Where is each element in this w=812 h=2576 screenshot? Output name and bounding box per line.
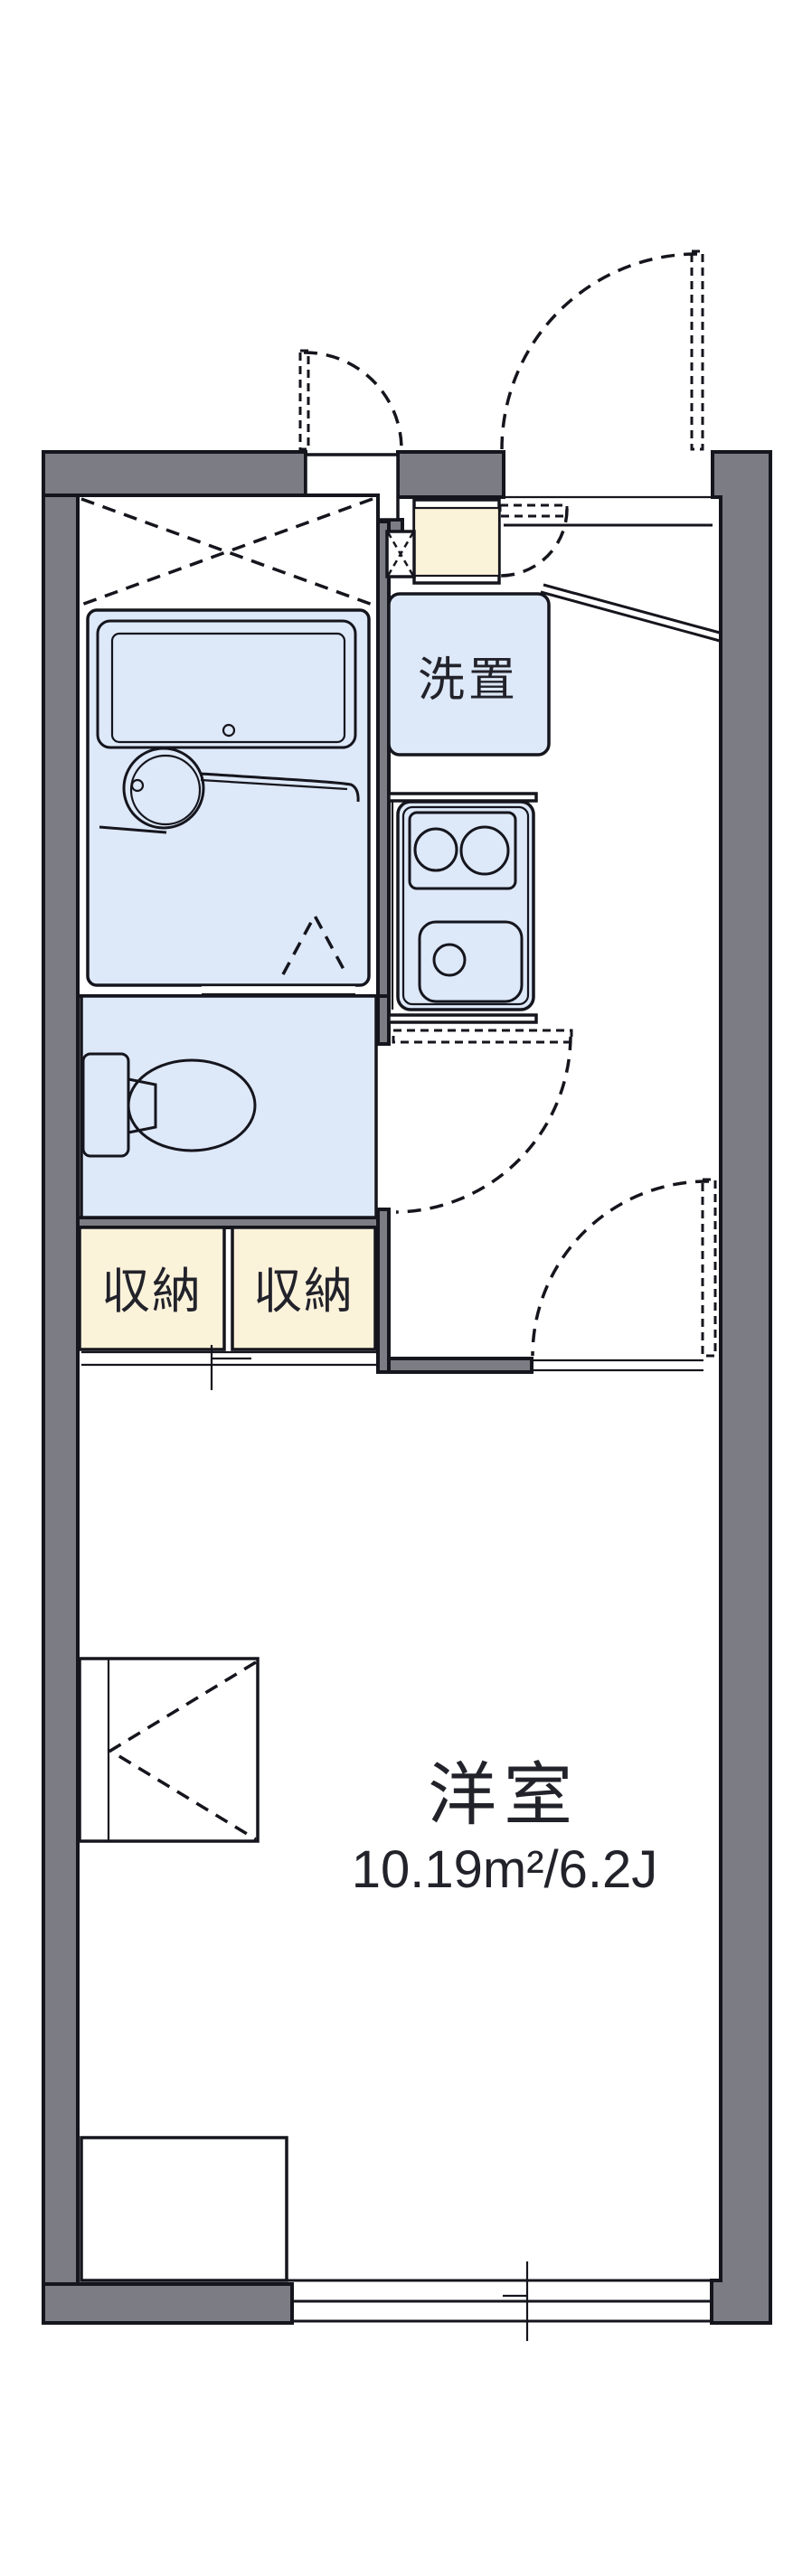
shoe-counter-edge-1: [543, 585, 720, 633]
room-door: [532, 1180, 715, 1370]
wall-bottom: [43, 2284, 292, 2323]
front-door-leaf: [692, 251, 703, 449]
wall-top-center: [398, 452, 504, 497]
kitchen-top-bar: [389, 794, 536, 801]
wall-toilet-right-lower: [378, 1209, 389, 1372]
shoe-counter-edge-2: [541, 592, 720, 641]
kitchen-bottom-bar: [389, 1015, 536, 1022]
alcove-door-swing-arc: [304, 353, 401, 449]
wall-right: [712, 452, 770, 2323]
low-cabinet: [81, 2138, 287, 2280]
room-door-swing-arc: [533, 1181, 709, 1356]
casement-window-box: [80, 1659, 258, 1841]
storage-closets: 収納 収納: [80, 1227, 378, 1390]
main-room: 洋室 10.19m²/6.2J: [80, 1659, 712, 2341]
laundry-label: 洗置: [418, 654, 519, 707]
toilet-room: [81, 996, 571, 1217]
utility-boxes: [387, 500, 567, 583]
unit-bath-panel: [88, 610, 369, 985]
wall-hall-room-divider: [389, 1359, 532, 1372]
front-door-swing-arc: [502, 254, 697, 449]
wall-left: [43, 452, 78, 2323]
floor-plan: 洗置 収納 収納 洋室 10.19m²/6.2J: [0, 0, 812, 2576]
water-heater-box: [414, 508, 499, 576]
storage-left-label: 収納: [101, 1264, 203, 1319]
heater-door-leaf: [500, 505, 567, 516]
storage-right-label: 収納: [253, 1264, 354, 1319]
kitchen: [389, 794, 536, 1022]
wall-toilet-right-upper: [378, 996, 389, 1044]
wall-top-left: [43, 452, 306, 495]
laundry-space: 洗置: [389, 594, 549, 755]
alcove-door-leaf: [300, 351, 308, 449]
main-room-label: 洋室: [428, 1757, 580, 1834]
room-door-leaf: [703, 1180, 715, 1356]
floor-plan-page: 洗置 収納 収納 洋室 10.19m²/6.2J: [0, 0, 812, 2576]
main-room-area: 10.19m²/6.2J: [352, 1840, 658, 1899]
toilet-room-floor: [81, 996, 376, 1217]
bathroom: [78, 495, 378, 996]
toilet-door-leaf: [393, 1030, 571, 1042]
toilet-door-swing-arc: [396, 1037, 571, 1212]
heater-door-swing-arc: [500, 509, 567, 576]
